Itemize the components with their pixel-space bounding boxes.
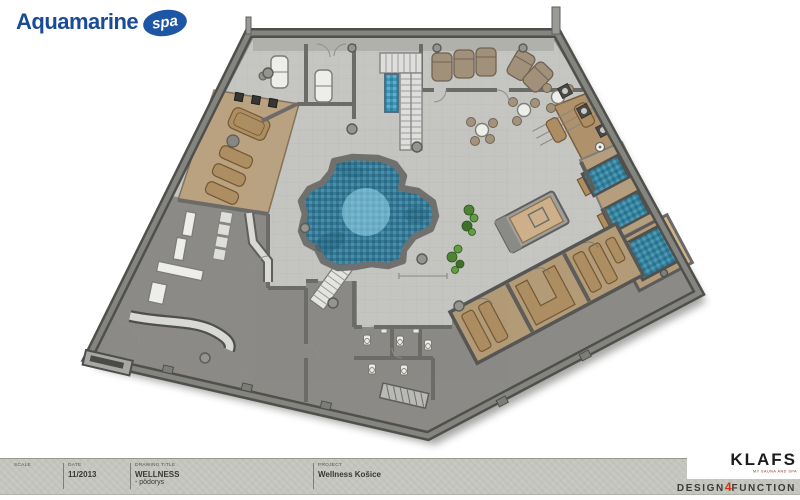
klafs-logo: KLAFS MY SAUNA AND SPA: [687, 450, 800, 479]
presentation-board: Aquamarine spa: [0, 0, 800, 500]
drawing-title: WELLNESS: [135, 470, 186, 479]
klafs-tagline: MY SAUNA AND SPA: [729, 470, 797, 474]
bench: [148, 282, 167, 305]
sink: [381, 329, 387, 333]
wall-stub: [246, 17, 251, 34]
design4function-logo: DESIGN4FUNCTION: [677, 480, 796, 494]
floor-plan: [0, 0, 800, 500]
project-label: PROJECT: [318, 463, 368, 469]
mini-plunge-pool: [385, 74, 398, 112]
wall-stub: [552, 7, 560, 34]
drawing-title-label: DRAWING TITLE: [135, 463, 175, 469]
date-value: 11/2013: [68, 470, 96, 479]
date-label: DATE: [68, 463, 91, 469]
scale-label: SCALE: [14, 463, 31, 469]
klafs-wordmark: KLAFS: [687, 450, 797, 470]
drawing-subtitle: - pôdorys: [135, 479, 186, 487]
sink: [413, 329, 419, 333]
project-value: Wellness Košice: [318, 470, 381, 479]
